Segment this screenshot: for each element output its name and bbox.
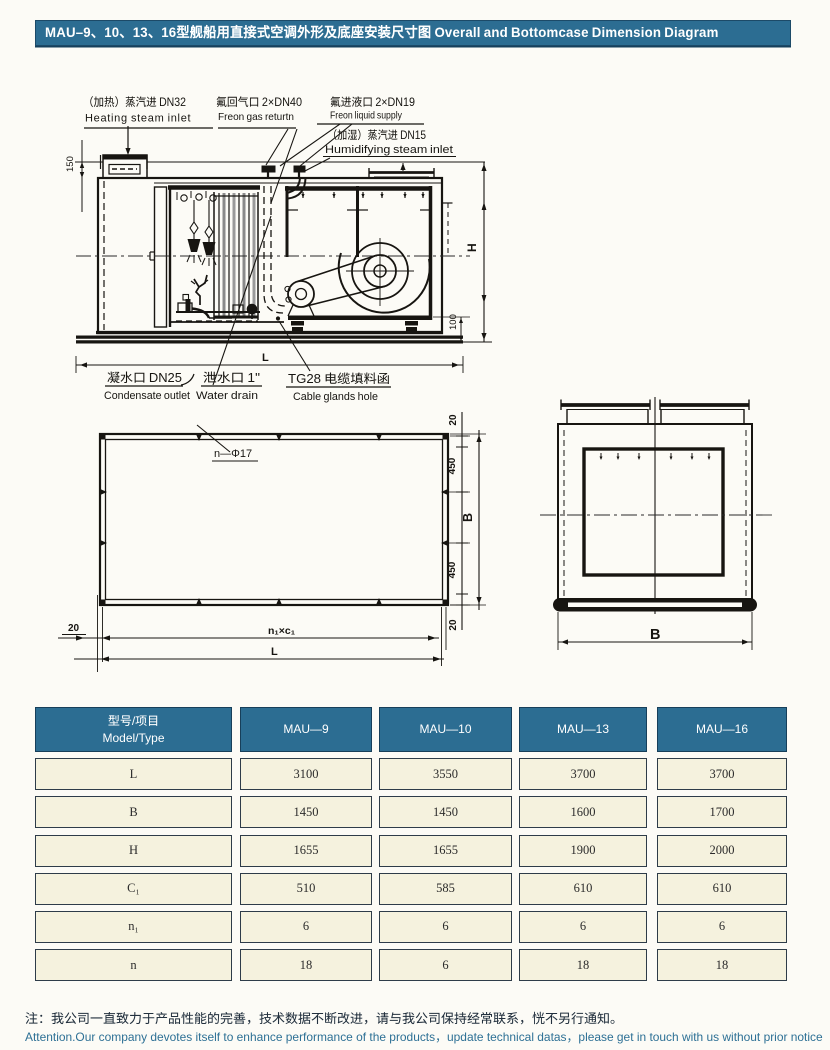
- svg-text:Water drain: Water drain: [196, 387, 258, 403]
- svg-text:TG28 电缆填料函: TG28 电缆填料函: [288, 368, 390, 387]
- svg-text:100: 100: [445, 314, 459, 330]
- svg-text:Condensate outlet: Condensate outlet: [104, 387, 190, 403]
- svg-text:Cable glands hole: Cable glands hole: [293, 388, 378, 404]
- svg-text:20: 20: [444, 414, 459, 426]
- svg-text:泄水口 1": 泄水口 1": [203, 367, 260, 386]
- svg-text:450: 450: [443, 457, 458, 474]
- svg-text:凝水口 DN25: 凝水口 DN25: [107, 367, 182, 386]
- svg-text:Humidifying steam inlet: Humidifying steam inlet: [325, 141, 453, 157]
- svg-text:450: 450: [443, 561, 458, 578]
- svg-text:B: B: [457, 513, 476, 522]
- svg-text:Freon gas returtn: Freon gas returtn: [218, 109, 294, 124]
- svg-text:n₁×c₁: n₁×c₁: [268, 623, 295, 638]
- svg-text:H: H: [463, 243, 480, 252]
- svg-text:L: L: [262, 349, 269, 365]
- svg-text:Freon liquid supply: Freon liquid supply: [330, 108, 403, 123]
- svg-text:L: L: [271, 643, 278, 659]
- svg-text:150: 150: [62, 156, 76, 172]
- svg-text:B: B: [650, 623, 660, 644]
- svg-text:Heating steam inlet: Heating steam inlet: [85, 110, 191, 126]
- svg-text:20: 20: [68, 619, 80, 634]
- svg-text:氟回气口 2×DN40: 氟回气口 2×DN40: [216, 94, 302, 110]
- svg-text:n—Φ17: n—Φ17: [214, 445, 252, 461]
- svg-text:（加热）蒸汽进 DN32: （加热）蒸汽进 DN32: [83, 94, 186, 110]
